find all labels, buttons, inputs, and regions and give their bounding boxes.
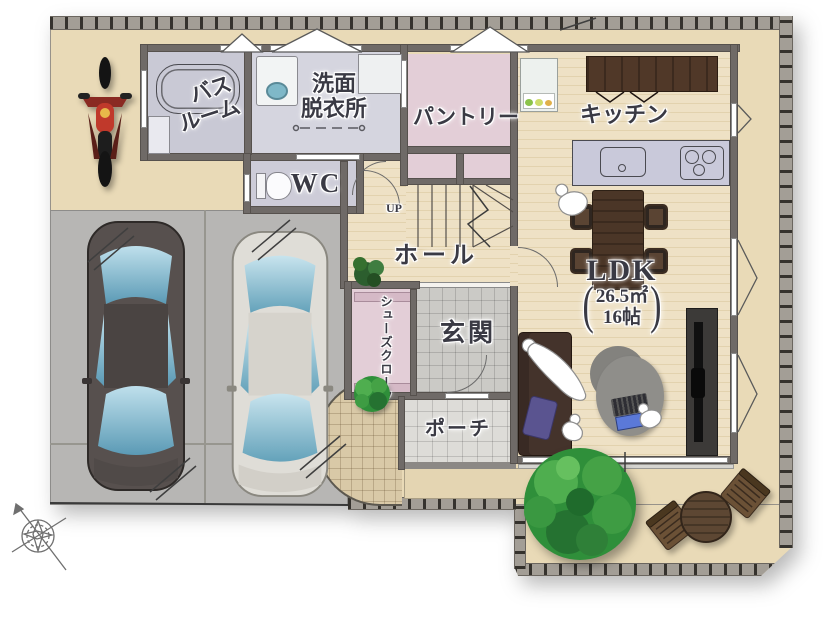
label-ldk: LDK ( 26.5㎡ 16帖 ) xyxy=(566,254,678,328)
label-hall: ホール xyxy=(388,243,484,270)
ldk-area-tatami: 16帖 xyxy=(596,307,648,328)
ldk-area-m2: 26.5㎡ xyxy=(596,286,648,307)
window-top-pantry xyxy=(450,45,528,51)
window-top-bathroom xyxy=(220,45,262,51)
car-dark xyxy=(80,218,192,494)
label-porch: ポーチ xyxy=(420,418,496,440)
wall-shoe-entrance xyxy=(410,289,417,396)
window-wc-left xyxy=(244,174,250,202)
dining-chair xyxy=(644,204,668,230)
food-item-green xyxy=(525,99,533,106)
window-kitchen-right xyxy=(731,103,737,137)
floor-plan: バス ルーム 洗面 脱衣所 WC パントリー キッチン UP ホール シューズク… xyxy=(0,0,825,617)
window-ldk-right-lower xyxy=(731,353,737,433)
wall-pantry-inner xyxy=(456,153,464,185)
plot-top-border xyxy=(50,16,793,30)
toilet-tank xyxy=(256,173,266,199)
kitchen-sink xyxy=(600,147,646,177)
label-washroom-line2: 脱衣所 xyxy=(292,97,376,122)
refrigerator xyxy=(520,58,558,112)
stove-burner-3 xyxy=(693,164,705,176)
paren-close: ) xyxy=(650,277,661,336)
wall-porch-left xyxy=(398,396,405,470)
shrub xyxy=(346,368,398,420)
label-kitchen: キッチン xyxy=(570,103,678,128)
window-ldk-right-upper xyxy=(731,238,737,316)
hall-plant xyxy=(348,252,390,294)
kitchen-wall-cabinet xyxy=(586,56,718,92)
stove-burner-1 xyxy=(685,150,699,164)
door-opening-hall-ldk xyxy=(510,246,518,286)
label-washroom-line1: 洗面 xyxy=(292,72,376,97)
stove-burner-2 xyxy=(702,150,716,164)
car-white xyxy=(224,228,336,500)
garden-table-set xyxy=(640,465,778,563)
dining-chair xyxy=(570,204,594,230)
compass-icon xyxy=(4,494,76,580)
label-wc: WC xyxy=(288,168,344,198)
entrance-step xyxy=(416,282,512,288)
stairs-floor xyxy=(406,184,514,248)
porch-step-edge xyxy=(400,462,516,469)
wall-bath-bottom xyxy=(140,153,408,161)
window-washroom-bottom xyxy=(296,154,360,160)
food-item-yellow xyxy=(535,99,543,106)
window-bath-left xyxy=(141,70,147,128)
label-washroom: 洗面 脱衣所 xyxy=(292,72,376,121)
ldk-area-values: 26.5㎡ 16帖 xyxy=(596,286,648,329)
sink-drain xyxy=(618,164,626,172)
window-top-washroom xyxy=(270,45,362,51)
tv-center xyxy=(691,368,705,398)
plot-right-border xyxy=(779,16,793,548)
garden-table xyxy=(681,492,731,542)
label-ldk-area: ( 26.5㎡ 16帖 ) xyxy=(566,286,678,329)
food-item-orange xyxy=(545,100,552,106)
label-pantry: パントリー xyxy=(412,106,520,130)
garden-tree xyxy=(510,432,650,582)
label-entrance: 玄関 xyxy=(436,320,500,348)
motorcycle xyxy=(76,55,134,189)
driveway-joint-v xyxy=(204,210,206,505)
label-up: UP xyxy=(381,202,407,215)
washing-machine-drum xyxy=(266,82,288,100)
front-door xyxy=(445,393,489,399)
paren-open: ( xyxy=(583,277,594,336)
